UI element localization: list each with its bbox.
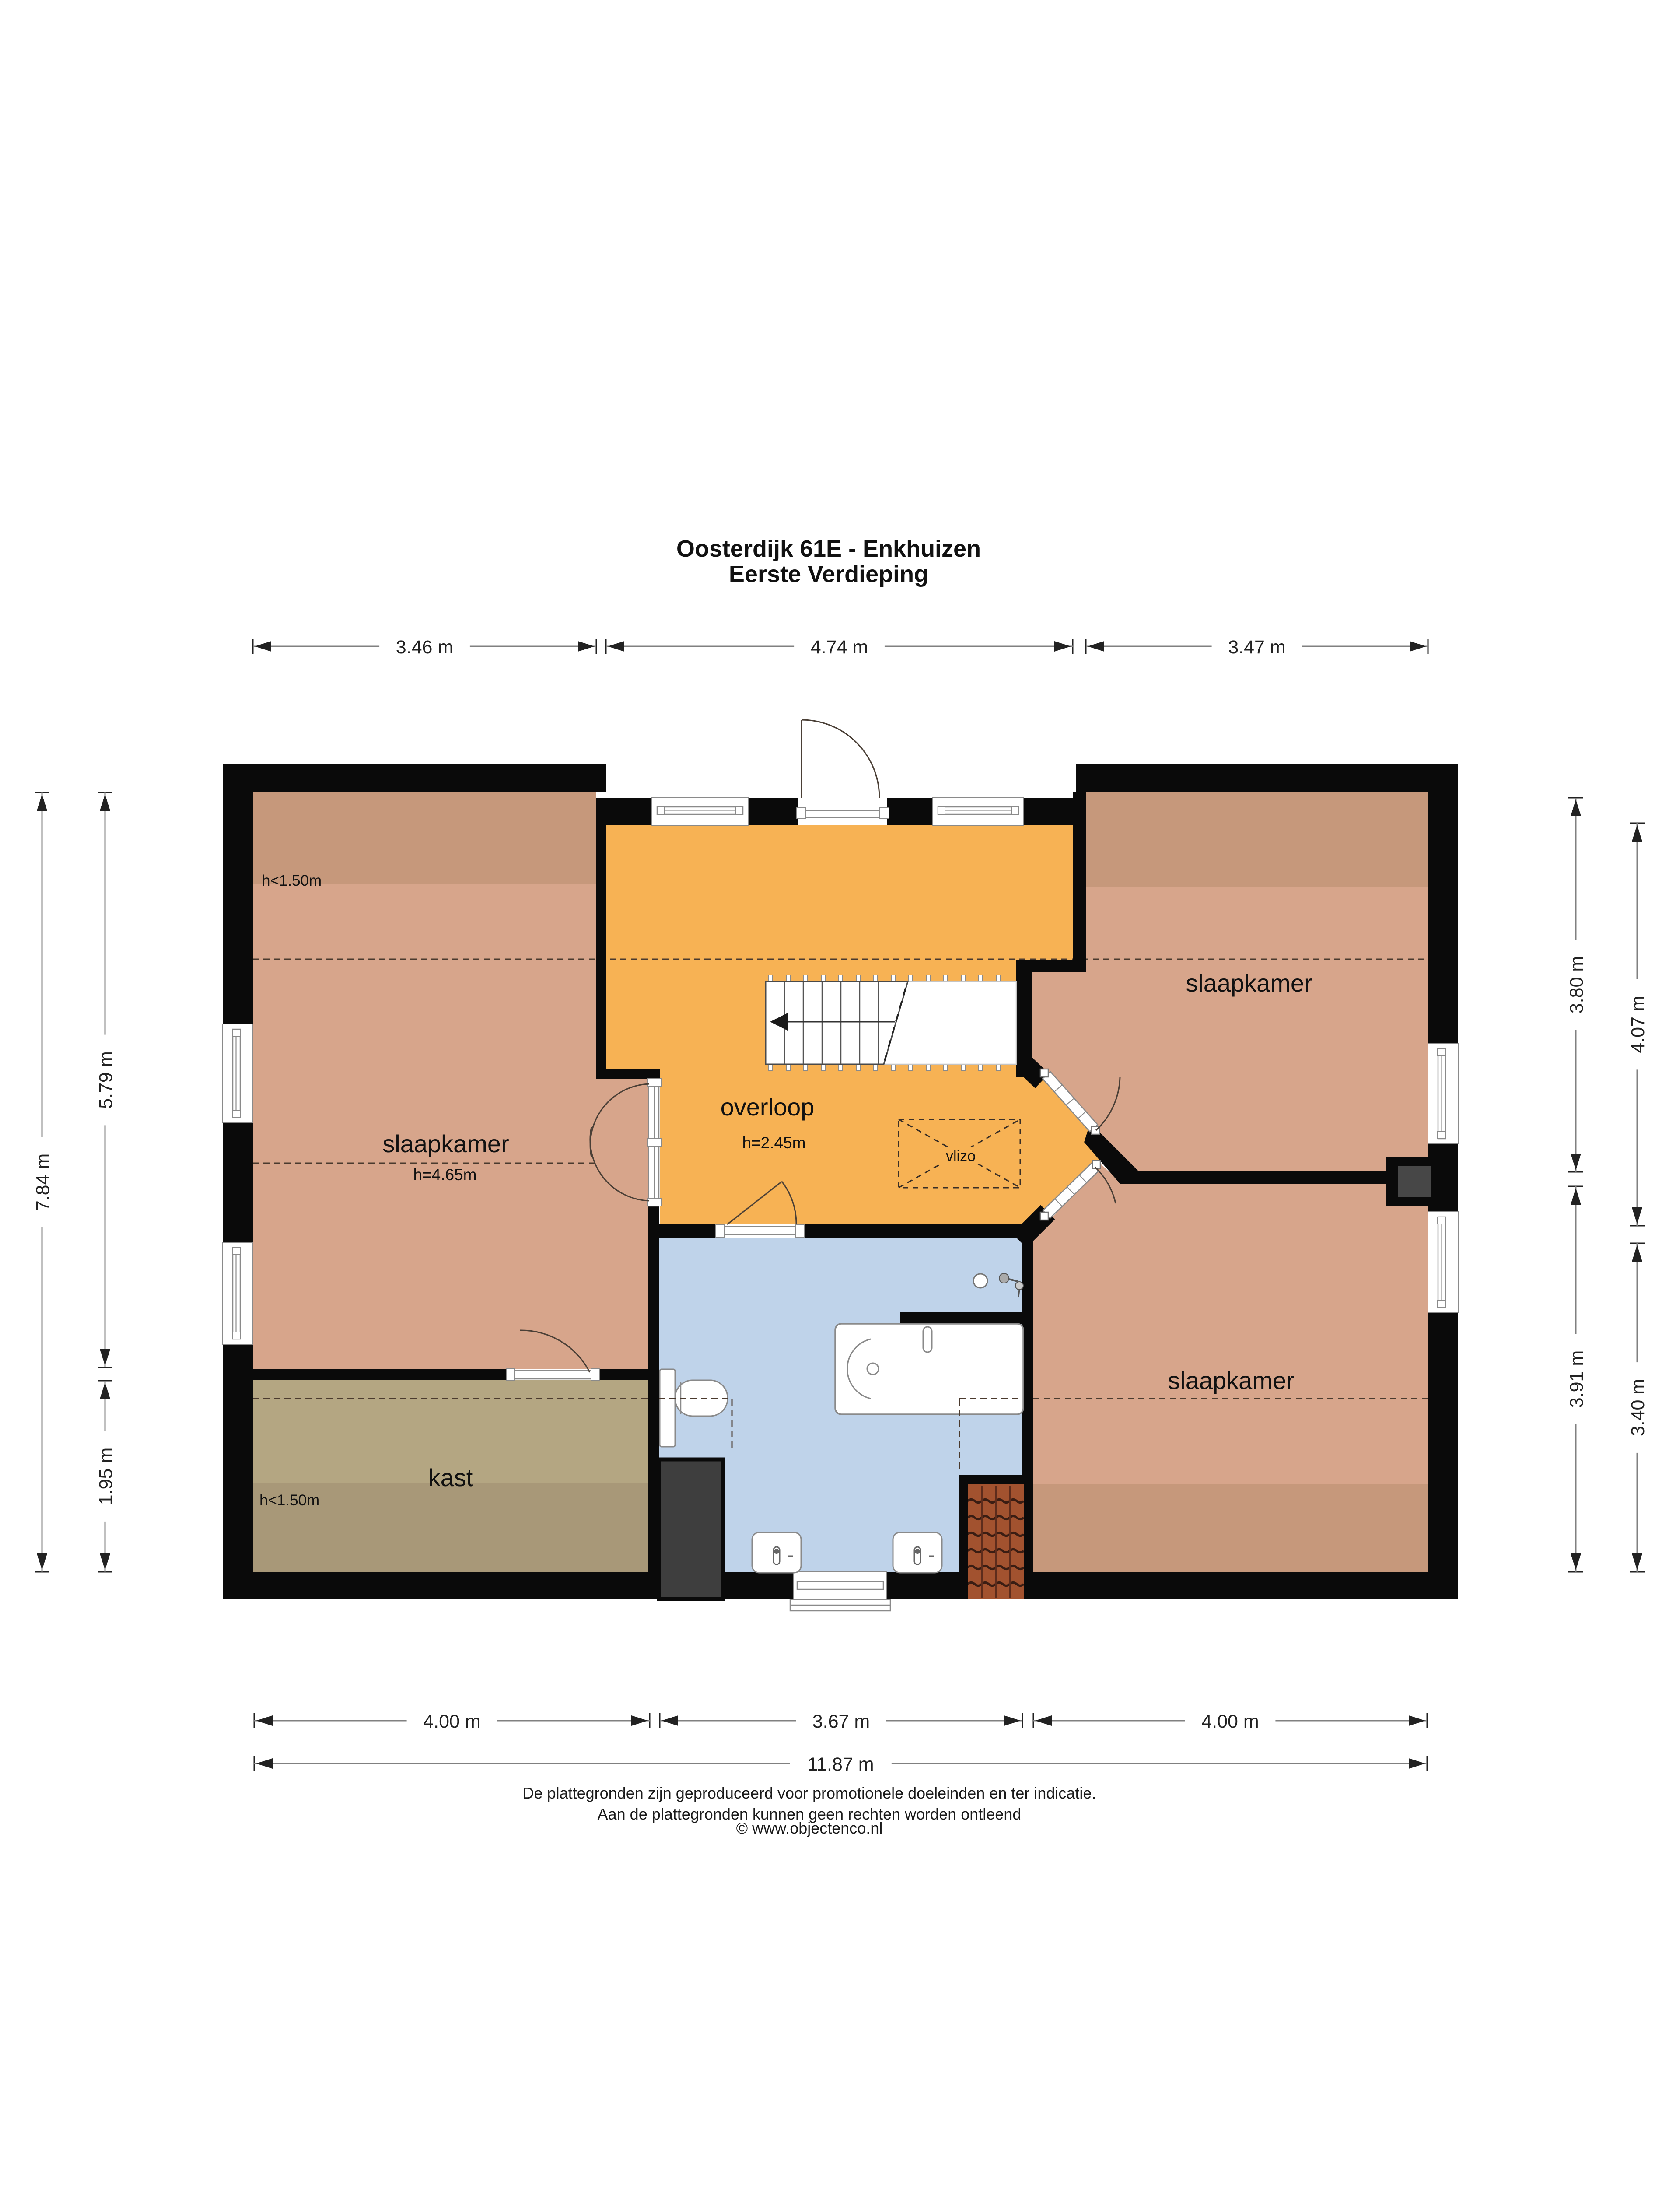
svg-text:h=4.65m: h=4.65m: [413, 1166, 476, 1184]
svg-text:5.79 m: 5.79 m: [95, 1051, 116, 1108]
svg-text:h<1.50m: h<1.50m: [259, 1492, 319, 1509]
svg-text:h=2.45m: h=2.45m: [742, 1134, 805, 1152]
svg-text:slaapkamer: slaapkamer: [1168, 1367, 1294, 1394]
svg-text:vlizo: vlizo: [946, 1148, 976, 1164]
svg-text:kast: kast: [428, 1464, 473, 1491]
svg-text:Oosterdijk 61E - Enkhuizen: Oosterdijk 61E - Enkhuizen: [676, 536, 981, 562]
svg-text:4.00 m: 4.00 m: [423, 1711, 480, 1732]
svg-text:11.87 m: 11.87 m: [807, 1754, 874, 1775]
svg-text:1.95 m: 1.95 m: [95, 1448, 116, 1505]
svg-text:3.40 m: 3.40 m: [1627, 1379, 1648, 1436]
svg-text:h<1.50m: h<1.50m: [262, 872, 322, 889]
svg-text:4.74 m: 4.74 m: [811, 637, 868, 658]
svg-text:© www.objectenco.nl: © www.objectenco.nl: [736, 1819, 883, 1837]
svg-text:overloop: overloop: [721, 1093, 815, 1121]
svg-text:slaapkamer: slaapkamer: [382, 1130, 509, 1157]
svg-text:3.80 m: 3.80 m: [1566, 956, 1587, 1013]
svg-text:slaapkamer: slaapkamer: [1186, 969, 1312, 997]
svg-text:7.84 m: 7.84 m: [32, 1154, 53, 1211]
svg-text:Eerste Verdieping: Eerste Verdieping: [729, 561, 928, 587]
svg-text:4.00 m: 4.00 m: [1201, 1711, 1259, 1732]
svg-text:3.91 m: 3.91 m: [1566, 1350, 1587, 1408]
svg-text:3.46 m: 3.46 m: [396, 637, 453, 658]
svg-text:De plattegronden zijn geproduc: De plattegronden zijn geproduceerd voor …: [523, 1784, 1096, 1802]
svg-text:4.07 m: 4.07 m: [1627, 996, 1648, 1053]
svg-text:3.67 m: 3.67 m: [812, 1711, 870, 1732]
svg-text:3.47 m: 3.47 m: [1228, 637, 1285, 658]
